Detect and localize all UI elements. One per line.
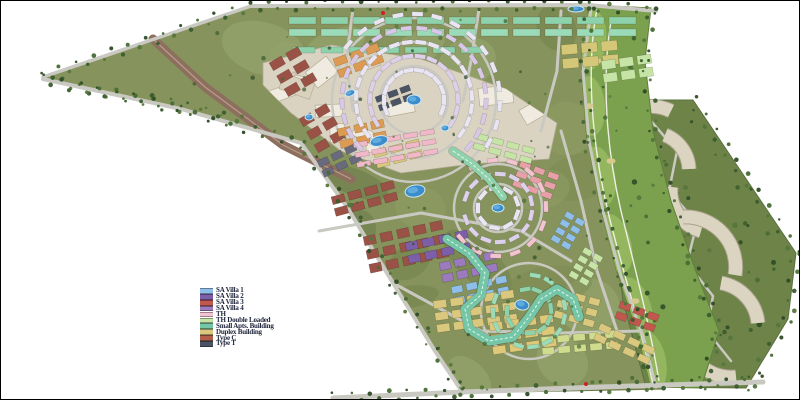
legend-swatch (200, 312, 213, 318)
entrance-marker (584, 382, 588, 386)
pond (441, 125, 449, 131)
pond (305, 114, 313, 120)
legend-swatch (200, 288, 213, 294)
master-plan-map (1, 1, 800, 400)
legend-swatch (200, 300, 213, 306)
legend-swatch (200, 318, 213, 324)
entrance-marker (381, 11, 385, 15)
legend-swatch (200, 341, 213, 347)
legend-swatch (200, 323, 213, 329)
legend-label: Type T (216, 340, 236, 347)
legend-item: Type T (200, 341, 274, 347)
legend-swatch (200, 294, 213, 300)
legend: SA Villa 1SA Villa 2SA Villa 3SA Villa 4… (200, 288, 274, 347)
pond (407, 95, 421, 105)
building-cluster (289, 29, 636, 36)
pond (492, 204, 504, 212)
legend-swatch (200, 335, 213, 341)
masterplan-screenshot: SA Villa 1SA Villa 2SA Villa 3SA Villa 4… (0, 0, 800, 400)
legend-swatch (200, 306, 213, 312)
legend-swatch (200, 329, 213, 335)
